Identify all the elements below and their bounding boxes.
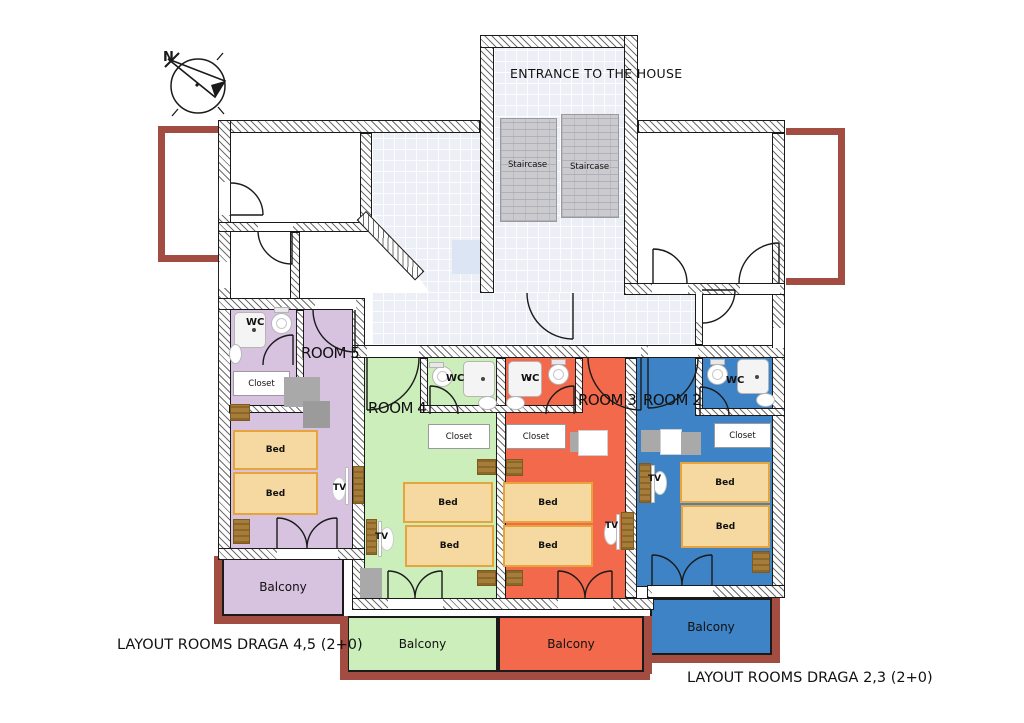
balcony5-edge-left bbox=[214, 556, 222, 624]
room4-chair bbox=[360, 568, 382, 598]
shower bbox=[463, 361, 495, 397]
room3-closet: Closet bbox=[506, 424, 566, 449]
balcony2-edge-right bbox=[772, 598, 780, 663]
toilet-tank bbox=[551, 359, 566, 365]
wall bbox=[290, 232, 300, 307]
door-opening bbox=[652, 284, 688, 294]
bed-label: Bed bbox=[715, 478, 734, 488]
bed-label: Bed bbox=[266, 489, 285, 499]
room5-balcony: Balcony bbox=[222, 558, 344, 616]
room2-balcony-label: Balcony bbox=[687, 620, 735, 634]
left-terrace-outline bbox=[158, 126, 220, 262]
room2-bed-2: Bed bbox=[681, 505, 770, 548]
room2-bed-1: Bed bbox=[680, 462, 770, 503]
room4-bed-1: Bed bbox=[403, 482, 493, 523]
bed-label: Bed bbox=[266, 445, 285, 455]
room5-wc-label: WC bbox=[246, 317, 264, 328]
toilet-tank bbox=[429, 362, 444, 368]
caption-bottom-left: LAYOUT ROOMS DRAGA 4,5 (2+0) bbox=[117, 637, 363, 653]
wall bbox=[480, 35, 494, 293]
toilet bbox=[707, 364, 728, 385]
staircase-left-label: Staircase bbox=[508, 160, 547, 170]
room2-chair bbox=[681, 432, 701, 455]
sink bbox=[229, 344, 242, 364]
nightstand bbox=[506, 459, 523, 476]
room3-bed-2: Bed bbox=[503, 525, 593, 567]
room5-bed-1: Bed bbox=[233, 430, 318, 470]
room4-label: ROOM 4 bbox=[368, 399, 426, 417]
room3-tv-panel bbox=[616, 514, 620, 550]
bed-label: Bed bbox=[440, 541, 459, 551]
wall bbox=[420, 405, 583, 413]
toilet-tank bbox=[710, 359, 725, 365]
right-terrace-outline bbox=[786, 128, 845, 285]
window bbox=[772, 328, 785, 348]
sink bbox=[756, 393, 775, 407]
room4-tv-label: TV bbox=[375, 532, 388, 542]
closet-label: Closet bbox=[729, 431, 756, 441]
wall bbox=[772, 133, 785, 598]
room2-tv-panel bbox=[651, 465, 655, 503]
room2-table bbox=[660, 429, 682, 455]
room5-tv-cabinet bbox=[353, 466, 364, 504]
sink bbox=[478, 396, 497, 410]
room2-tv-label: TV bbox=[648, 474, 661, 484]
compass-rose: N bbox=[155, 45, 240, 123]
room5-cabinet-top bbox=[230, 404, 250, 421]
room5-tv-label: TV bbox=[333, 483, 346, 493]
room5-label: ROOM 5 bbox=[301, 344, 359, 362]
door-opening bbox=[388, 599, 443, 609]
door-opening bbox=[277, 549, 338, 559]
floor-plan: Balcony Balcony Balcony Balcony bbox=[0, 0, 1024, 723]
door-opening bbox=[589, 346, 641, 357]
door-opening bbox=[696, 292, 702, 322]
nightstand bbox=[477, 459, 496, 475]
room3-wc-label: WC bbox=[521, 373, 539, 384]
toilet bbox=[271, 313, 292, 334]
balcony5-edge-bottom bbox=[214, 616, 345, 624]
room3-balcony: Balcony bbox=[498, 616, 644, 672]
compass-n-label: N bbox=[163, 50, 174, 65]
wall bbox=[695, 408, 785, 416]
bed-label: Bed bbox=[538, 541, 557, 551]
staircase-left bbox=[500, 118, 557, 222]
room3-bed-1: Bed bbox=[503, 482, 593, 523]
closet-label: Closet bbox=[523, 432, 550, 442]
room3-table bbox=[578, 430, 608, 456]
door-opening bbox=[648, 346, 698, 357]
balcony43-edge-bottom bbox=[340, 672, 650, 680]
room3-label: ROOM 3 bbox=[578, 391, 636, 409]
room4-bed-2: Bed bbox=[405, 525, 494, 567]
staircase-right-label: Staircase bbox=[570, 162, 609, 172]
bed-label: Bed bbox=[716, 522, 735, 532]
nightstand bbox=[752, 551, 770, 573]
balcony3-edge-right bbox=[644, 616, 652, 674]
room5-nightstand bbox=[233, 519, 250, 544]
entrance-title: ENTRANCE TO THE HOUSE bbox=[510, 66, 682, 81]
room5-balcony-label: Balcony bbox=[259, 580, 307, 594]
room2-wc-label: WC bbox=[726, 375, 744, 386]
main-corridor-floor bbox=[372, 293, 695, 345]
room5-chair bbox=[303, 401, 330, 428]
room2-closet: Closet bbox=[714, 423, 771, 448]
toilet bbox=[548, 364, 569, 385]
wall bbox=[218, 120, 480, 133]
wall bbox=[218, 222, 372, 232]
room5-bed-2: Bed bbox=[233, 472, 318, 515]
bed-label: Bed bbox=[538, 498, 557, 508]
door-opening bbox=[315, 299, 356, 309]
toilet-tank bbox=[274, 307, 289, 313]
nightstand bbox=[477, 570, 496, 586]
room4-balcony-label: Balcony bbox=[399, 637, 447, 651]
door-opening bbox=[558, 599, 613, 609]
room3-tv-label: TV bbox=[605, 521, 618, 531]
bed-label: Bed bbox=[438, 498, 457, 508]
room2-chair bbox=[641, 430, 661, 452]
room3-balcony-label: Balcony bbox=[547, 637, 595, 651]
wall bbox=[638, 120, 785, 133]
room4-wc-label: WC bbox=[446, 373, 464, 384]
door-opening bbox=[740, 284, 780, 294]
window bbox=[218, 182, 231, 215]
door-opening bbox=[652, 586, 713, 597]
door-opening bbox=[367, 346, 419, 357]
room2-label: ROOM 2 bbox=[643, 391, 701, 409]
room2-balcony: Balcony bbox=[650, 598, 772, 655]
room5-closet: Closet bbox=[233, 371, 290, 396]
caption-bottom-right: LAYOUT ROOMS DRAGA 2,3 (2+0) bbox=[687, 670, 933, 686]
closet-label: Closet bbox=[248, 379, 275, 389]
balcony2-edge-bottom bbox=[650, 655, 780, 663]
nightstand bbox=[506, 570, 523, 586]
door-opening bbox=[258, 223, 293, 231]
wall bbox=[480, 35, 638, 48]
sink bbox=[506, 396, 525, 410]
room4-closet: Closet bbox=[428, 424, 490, 449]
room3-tv-cabinet bbox=[621, 512, 634, 550]
closet-label: Closet bbox=[446, 432, 473, 442]
room4-balcony: Balcony bbox=[347, 616, 498, 672]
window bbox=[218, 262, 231, 288]
